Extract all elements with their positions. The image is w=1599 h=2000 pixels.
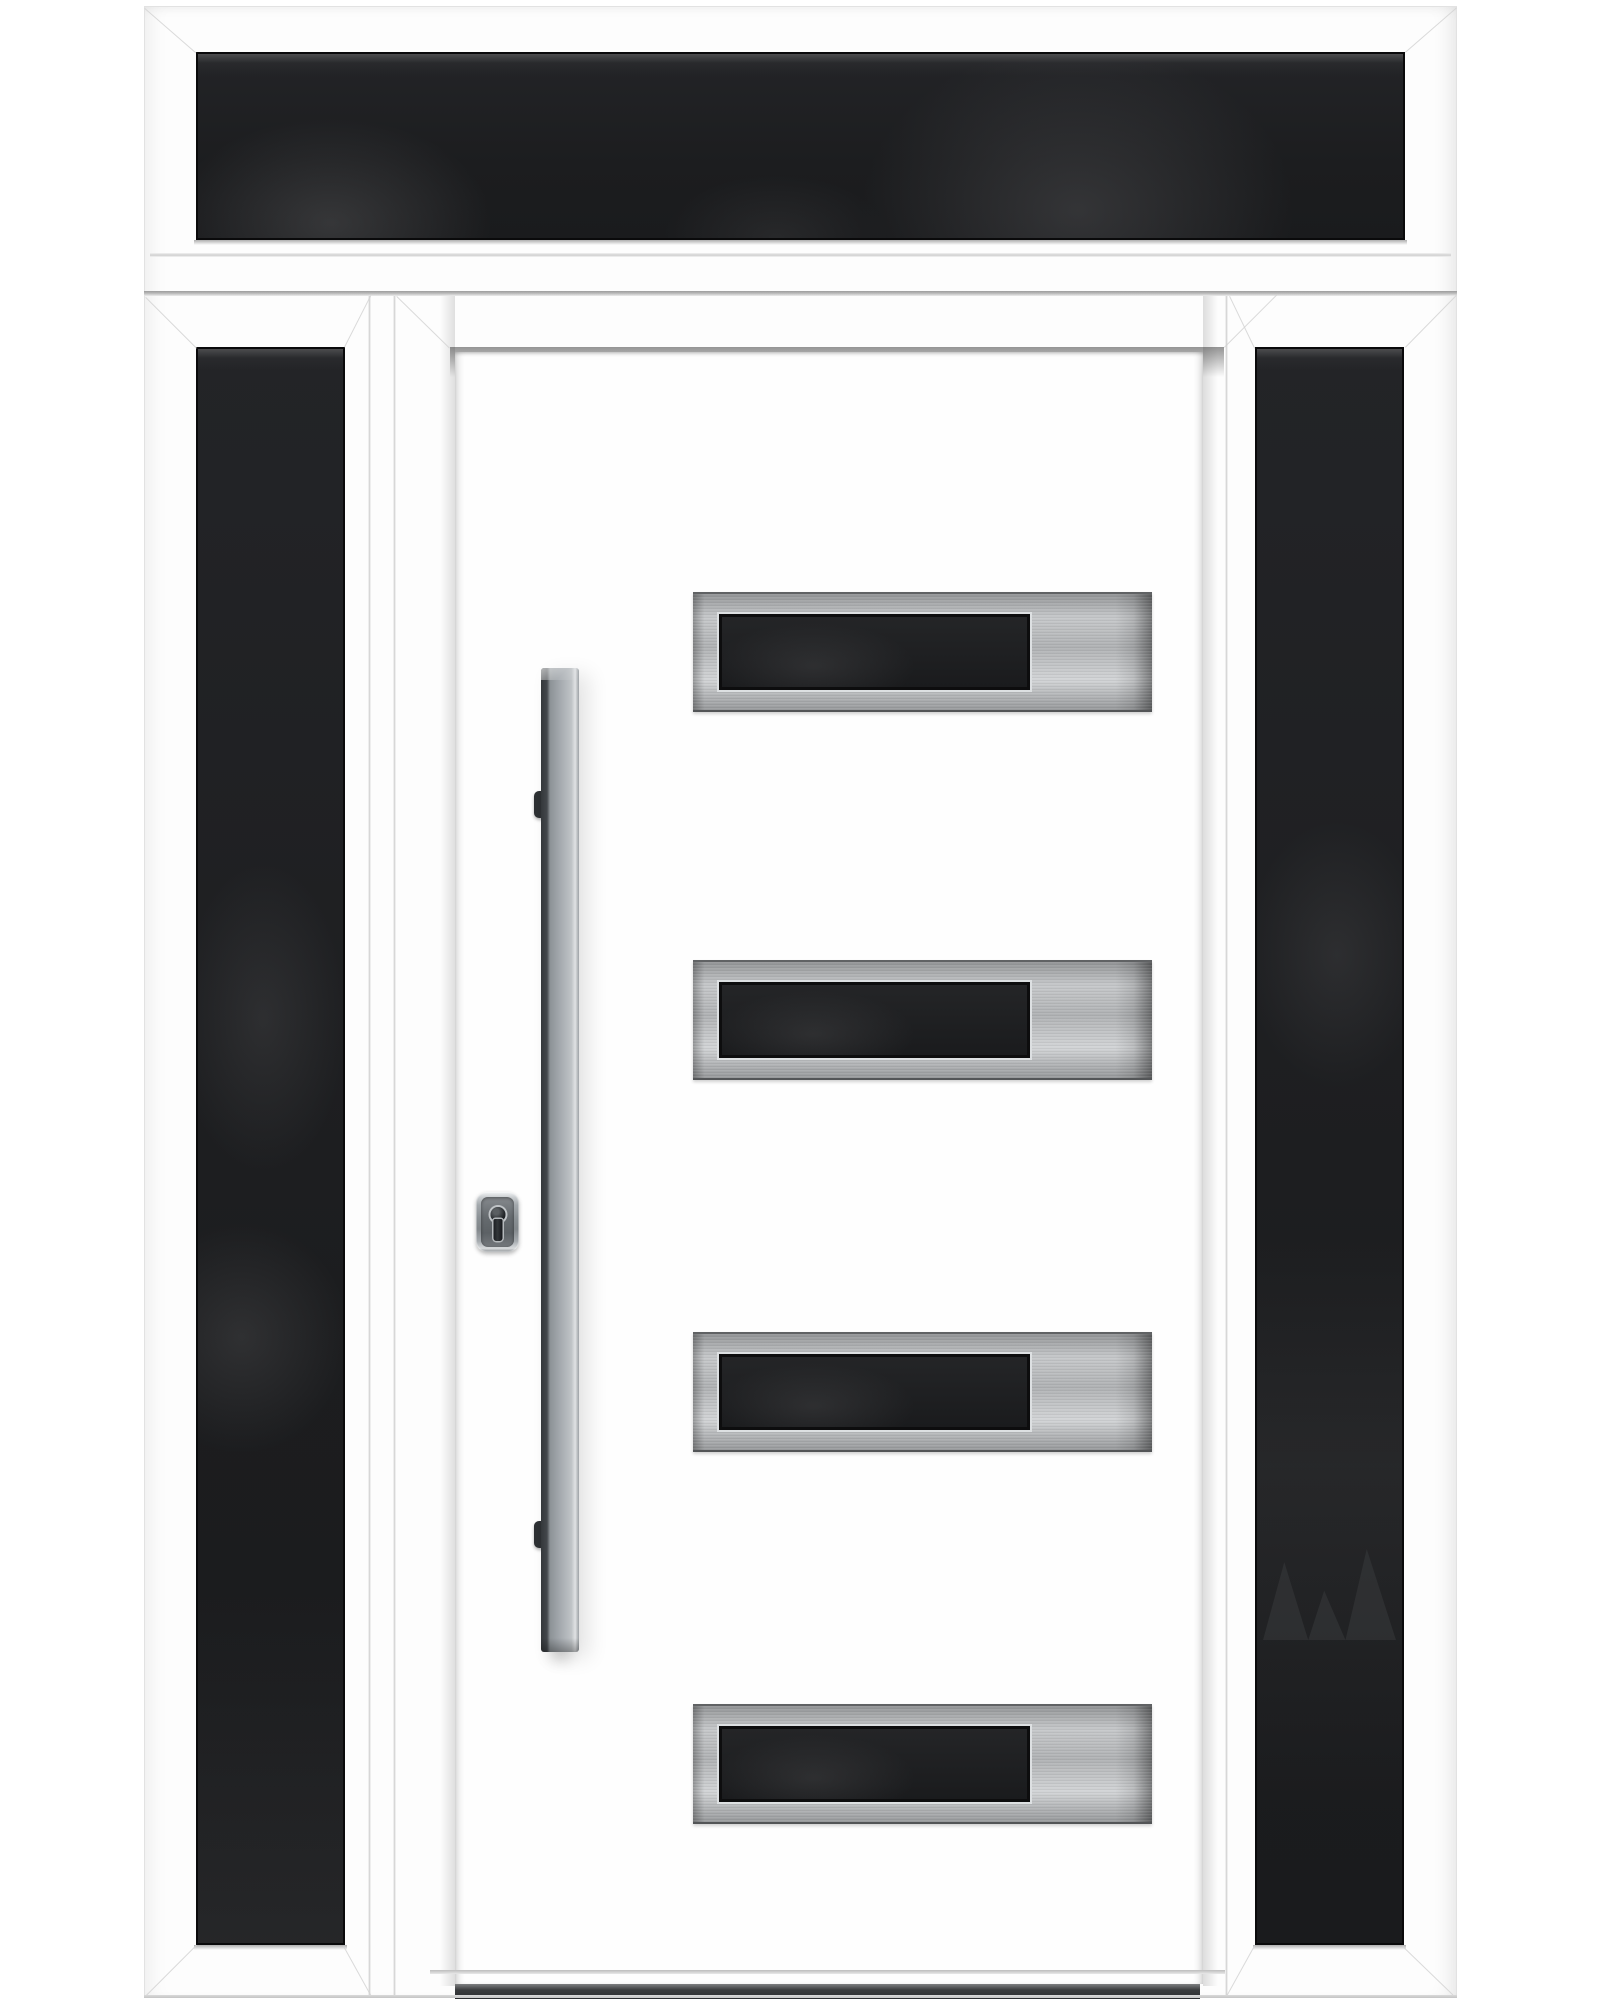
frame-bottom-edge	[144, 1995, 1457, 1998]
keyhole-stem	[493, 1219, 502, 1241]
insert-glass-pane	[719, 614, 1030, 690]
mullion-line	[393, 296, 396, 1996]
mullion-line	[368, 296, 371, 1996]
lock-escutcheon-plate	[481, 1197, 514, 1247]
transom-glass	[196, 52, 1405, 240]
transom-rail-line	[150, 253, 1451, 257]
insert-glass-pane	[719, 1354, 1030, 1430]
glass-insert	[693, 960, 1152, 1080]
jamb-shadow	[1203, 296, 1218, 1986]
jamb-shadow	[440, 296, 455, 1986]
door-sill-line	[430, 1970, 1225, 1974]
transom-glass-shadow	[194, 240, 1407, 245]
glass-insert	[693, 592, 1152, 712]
insert-glass-pane	[719, 1726, 1030, 1802]
glass-insert	[693, 1332, 1152, 1452]
frame-separator-line	[144, 291, 1457, 296]
insert-glass-pane	[719, 982, 1030, 1058]
glass-insert	[693, 1704, 1152, 1824]
sidelight-left-shadow	[194, 1945, 347, 1950]
lock-escutcheon	[476, 1192, 519, 1252]
sidelight-glass-left	[196, 347, 345, 1945]
sidelight-right-shadow	[1253, 1945, 1406, 1950]
pull-handle	[541, 668, 579, 1652]
door-product-image	[0, 0, 1599, 2000]
mullion-line	[1225, 296, 1228, 1996]
sidelight-glass-right	[1255, 347, 1404, 1945]
